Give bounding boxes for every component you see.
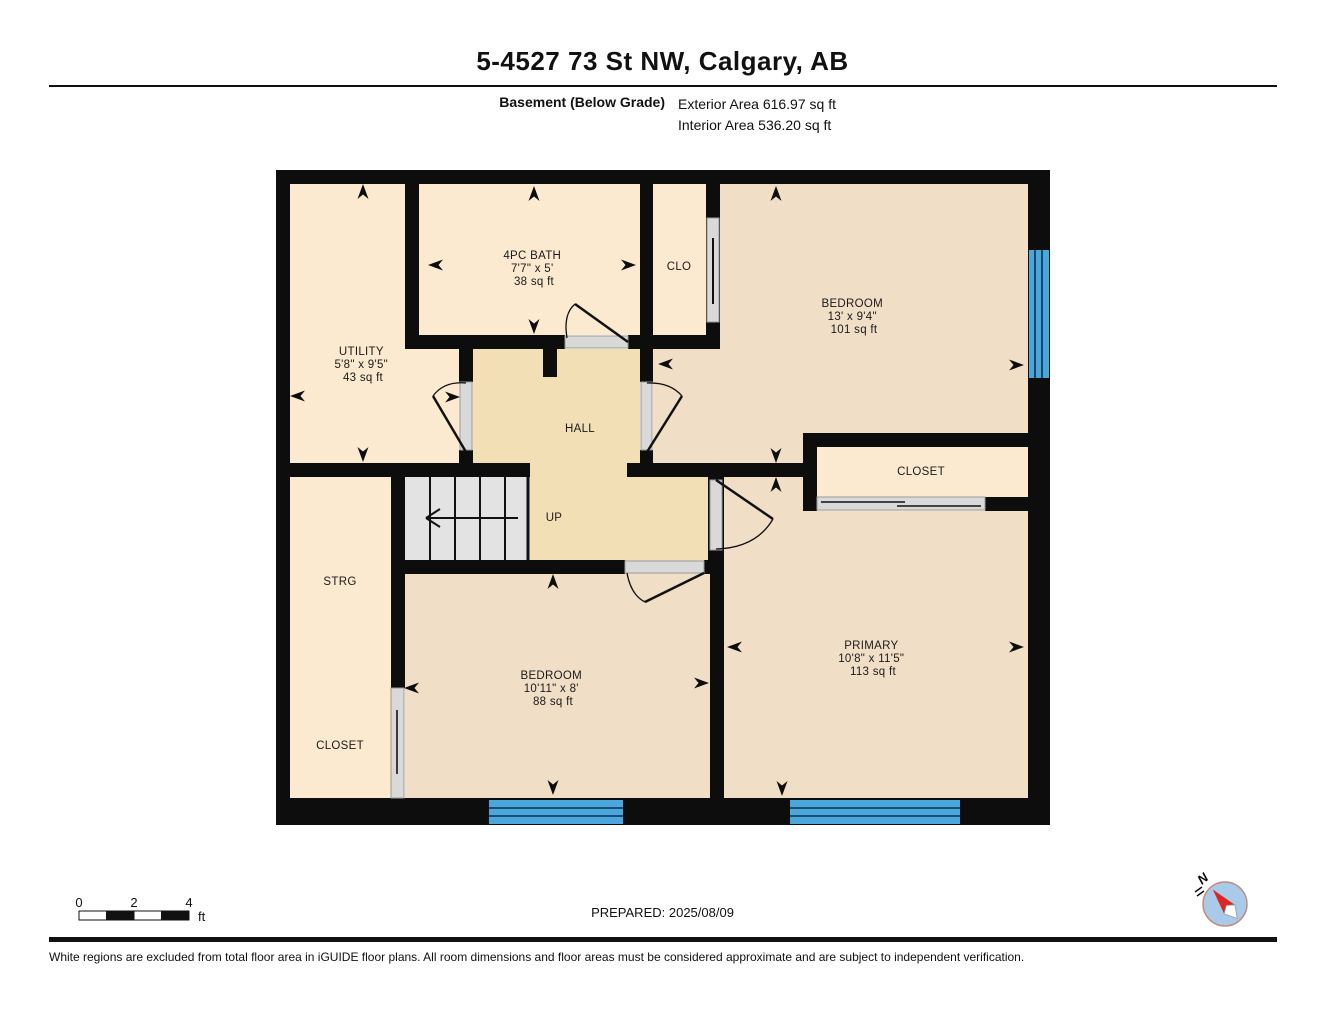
primary-window (790, 800, 960, 824)
room-clo (653, 184, 706, 335)
title-divider (49, 85, 1277, 87)
compass-icon: N (1194, 872, 1254, 932)
closet-left-sliding-door (391, 688, 404, 798)
room-primary (724, 463, 1028, 800)
closet-right-label: CLOSET (897, 466, 945, 478)
floor-plan: UTILITY 5'8" x 9'5" 43 sq ft 4PC BATH 7'… (276, 170, 1050, 825)
closet-right-sliding-door (817, 497, 985, 510)
exterior-area: Exterior Area 616.97 sq ft (678, 94, 836, 115)
bedroom-upper-window (1029, 250, 1049, 378)
bedroom-upper-label: BEDROOM 13' x 9'4" 101 sq ft (821, 298, 886, 336)
clo-label: CLO (667, 261, 692, 273)
interior-area: Interior Area 536.20 sq ft (678, 115, 836, 136)
compass-north-label: N (1194, 872, 1211, 887)
utility-label: UTILITY 5'8" x 9'5" 43 sq ft (334, 346, 391, 384)
floor-label: Basement (Below Grade) (300, 94, 665, 110)
strg-label: STRG (323, 576, 356, 588)
page-title: 5-4527 73 St NW, Calgary, AB (0, 46, 1325, 77)
prepared-date: PREPARED: 2025/08/09 (0, 905, 1325, 920)
closet-left-label: CLOSET (316, 740, 364, 752)
bedroom-lower-window (489, 800, 623, 824)
footer-divider (49, 937, 1277, 942)
disclaimer-text: White regions are excluded from total fl… (49, 950, 1289, 964)
hall-label: HALL (565, 423, 595, 435)
up-label: UP (546, 512, 563, 524)
area-summary: Exterior Area 616.97 sq ft Interior Area… (678, 94, 836, 136)
room-utility (290, 184, 419, 463)
floorplan-sheet: 5-4527 73 St NW, Calgary, AB Basement (B… (0, 0, 1325, 1024)
